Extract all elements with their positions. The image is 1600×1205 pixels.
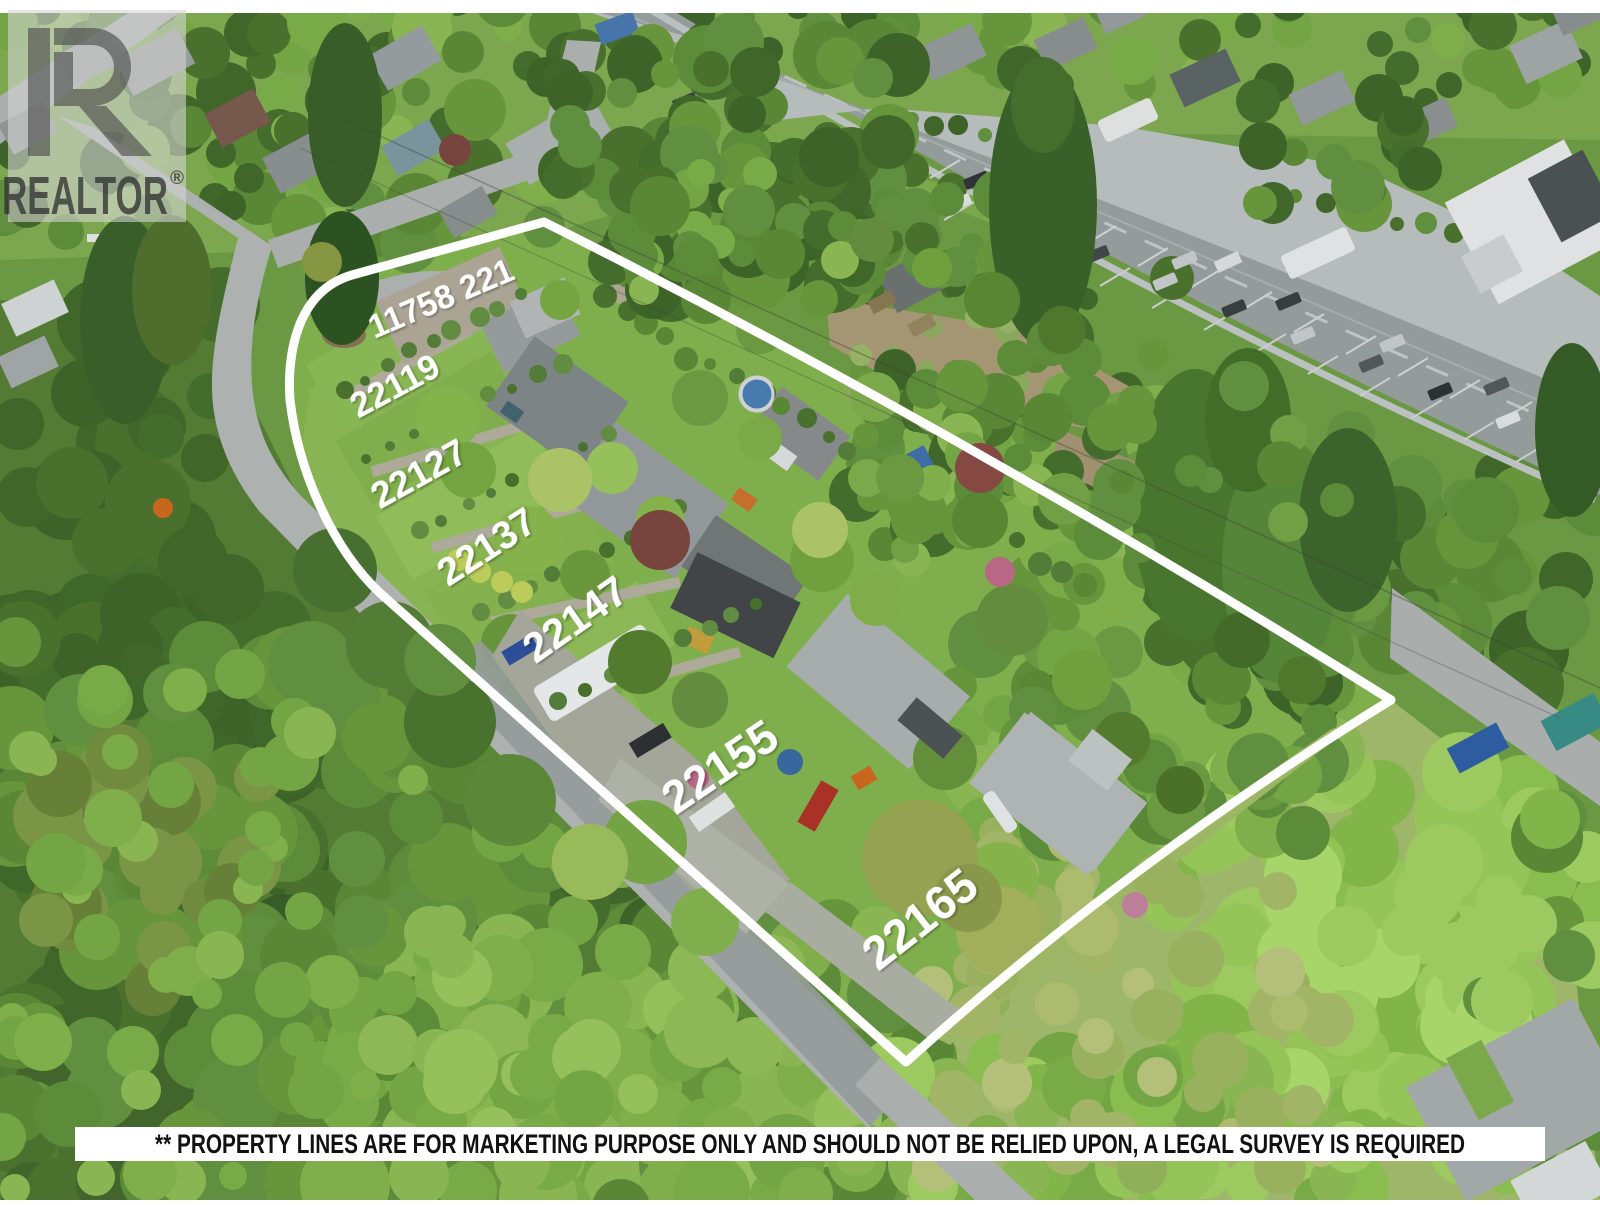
- svg-text:®: ®: [170, 168, 184, 189]
- svg-text:** PROPERTY LINES ARE FOR MARK: ** PROPERTY LINES ARE FOR MARKETING PURP…: [155, 1129, 1465, 1159]
- svg-text:REALTOR: REALTOR: [2, 166, 168, 226]
